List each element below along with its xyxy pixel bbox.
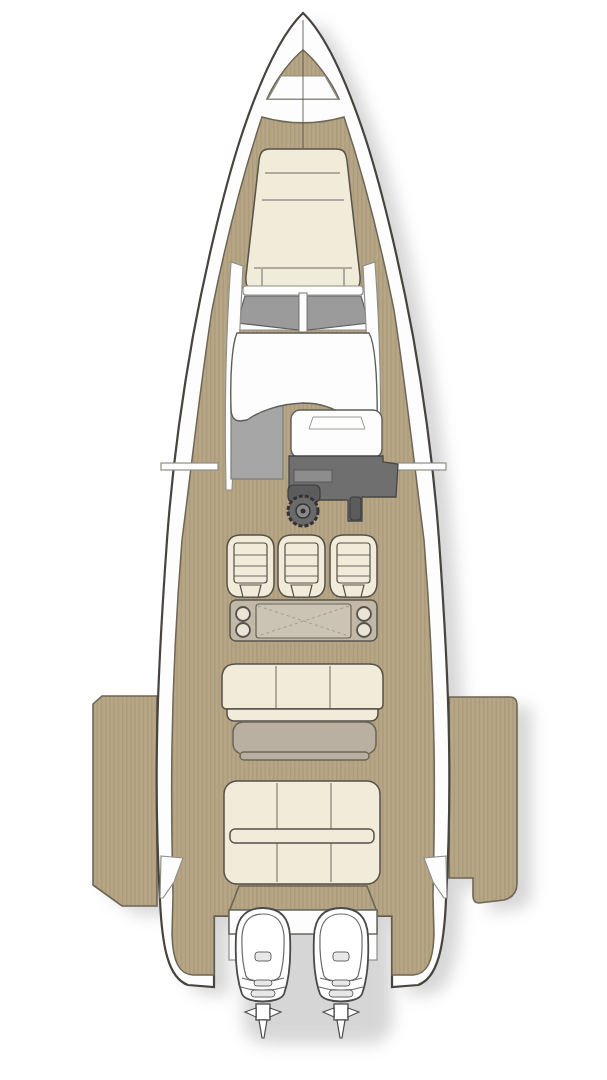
- helm-seats: [227, 535, 377, 597]
- port-side-step: [161, 463, 218, 470]
- folding-table-top: [256, 604, 351, 638]
- helm-seat-starboard: [330, 535, 377, 597]
- helm-seat-port: [227, 535, 274, 597]
- helm-seat-center: [278, 535, 325, 597]
- cockpit-sofa: [222, 664, 383, 721]
- side-terrace-port: [93, 696, 157, 906]
- windshield-mullion: [299, 293, 307, 332]
- bow-sunpad: [246, 149, 360, 292]
- cup-holder: [357, 607, 371, 621]
- cockpit-table: [233, 722, 376, 760]
- aft-sunpad: [224, 781, 380, 884]
- wheel-center: [301, 509, 306, 514]
- engine-well-deck: [229, 886, 377, 912]
- wet-bar-unit: [230, 600, 377, 641]
- aft-sunpad-divider: [230, 829, 374, 843]
- cup-holder: [236, 607, 250, 621]
- instrument-display: [294, 470, 332, 482]
- side-terrace-starboard: [449, 697, 517, 903]
- cup-holder: [357, 623, 371, 637]
- boat-deck-plan: Motor boat deck plan — top view general …: [0, 0, 607, 1080]
- cup-holder: [236, 623, 250, 637]
- deck-plan-svg: Motor boat deck plan — top view general …: [0, 0, 607, 1080]
- throttle-lever: [350, 497, 361, 520]
- table-lower-leaf: [240, 752, 369, 760]
